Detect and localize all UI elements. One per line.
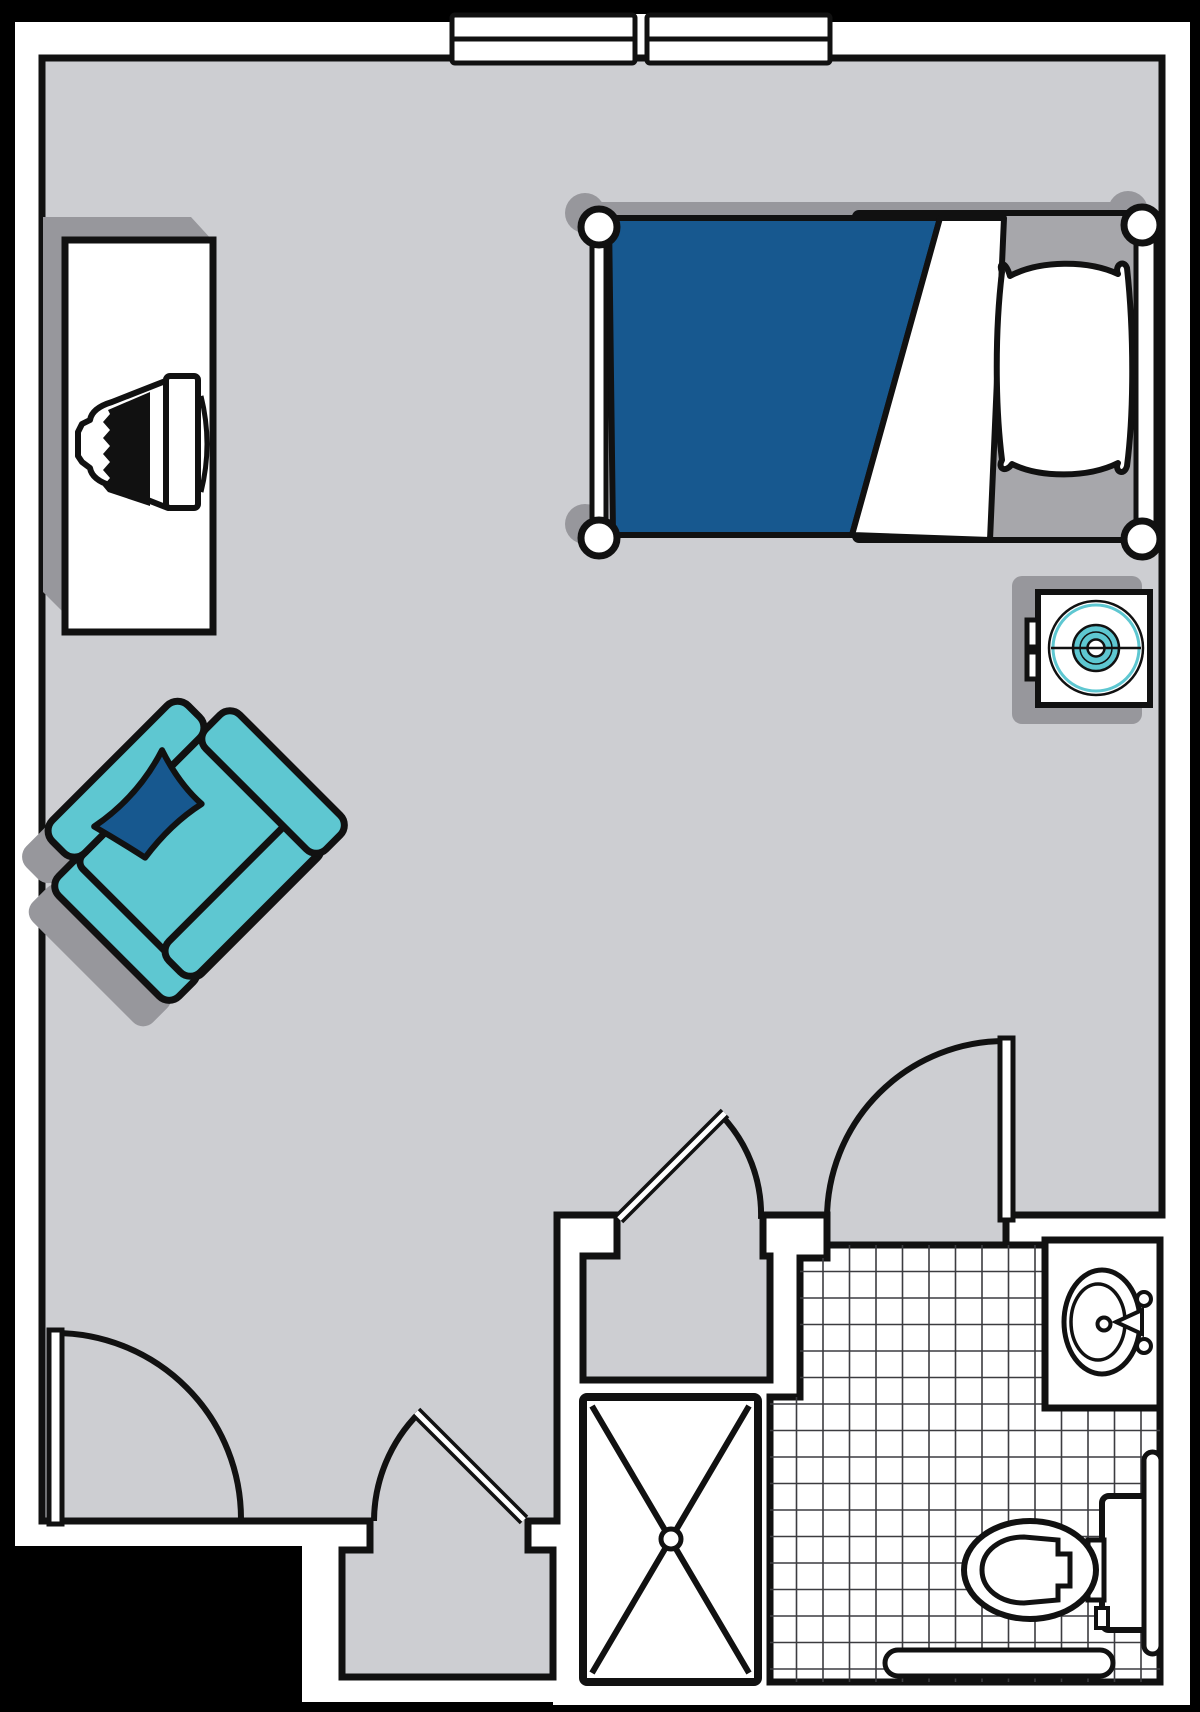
headboard-rail bbox=[1136, 228, 1156, 536]
sink-drain bbox=[1098, 1318, 1111, 1331]
shower-drain bbox=[661, 1529, 681, 1549]
shower-stall bbox=[583, 1397, 758, 1682]
tv-screen bbox=[166, 376, 198, 508]
toilet-bowl-inner bbox=[982, 1537, 1070, 1603]
bed bbox=[565, 191, 1160, 557]
toilet-flush bbox=[1096, 1608, 1108, 1628]
entry-door-leaf bbox=[49, 1330, 62, 1524]
faucet-handle bbox=[1137, 1292, 1151, 1306]
sink-vanity bbox=[1045, 1240, 1160, 1408]
fan-knob bbox=[1027, 652, 1038, 679]
bed-pillow bbox=[997, 264, 1133, 475]
fan-knob bbox=[1027, 620, 1038, 647]
bedpost bbox=[1124, 207, 1160, 243]
floor-plan-canvas bbox=[0, 0, 1200, 1712]
faucet-handle bbox=[1137, 1339, 1151, 1353]
bedpost bbox=[581, 209, 617, 245]
bedpost bbox=[581, 520, 617, 556]
fan-unit bbox=[1012, 576, 1150, 724]
floor-plan bbox=[0, 0, 1200, 1712]
bathroom-door-leaf bbox=[1000, 1038, 1013, 1220]
window-left bbox=[452, 15, 635, 63]
grab-bar-vertical bbox=[1144, 1452, 1161, 1654]
bedpost bbox=[1124, 521, 1160, 557]
footboard-rail bbox=[592, 230, 606, 532]
grab-bar-horizontal bbox=[885, 1650, 1113, 1676]
window-right bbox=[647, 15, 830, 63]
desk-dresser bbox=[43, 217, 213, 632]
